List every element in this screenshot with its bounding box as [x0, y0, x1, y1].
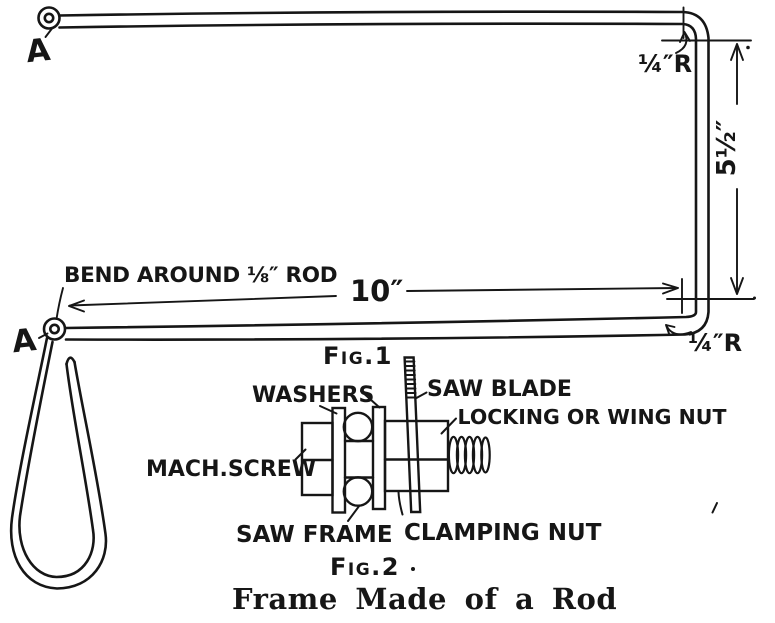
saw-blade-label: SAW BLADE	[427, 377, 572, 402]
fig2-clamp-detail: WASHERS SAW BLADE LOCKING OR WING NUT MA…	[146, 358, 726, 582]
end-label-a-top: A	[24, 32, 52, 70]
saw-frame-label: SAW FRAME	[236, 522, 393, 548]
scanned-drawing-page: A A BEND AROUND ⅛″ ROD 10″ 5½″ ¼″R ¼″R F…	[0, 0, 775, 623]
screw-shank	[345, 441, 373, 478]
fig1-rod-frame: A A BEND AROUND ⅛″ ROD 10″ 5½″ ¼″R ¼″R F…	[10, 8, 756, 589]
height-dim-label: 5½″	[712, 120, 742, 177]
top-eye-inner	[45, 14, 53, 22]
fig1-label: Fig.1	[323, 342, 393, 370]
locking-nut-label: LOCKING OR WING NUT	[458, 405, 727, 429]
frame-rod-section-top	[344, 413, 372, 441]
bottom-eye-outer	[44, 319, 65, 340]
saw-blade-leader	[416, 393, 427, 399]
clamping-nut-label: CLAMPING NUT	[404, 520, 602, 546]
bottom-eye-inner	[50, 325, 58, 333]
speck	[411, 567, 415, 571]
bend-note-leader	[57, 288, 64, 319]
end-label-a-bottom: A	[10, 322, 38, 360]
fig2-label: Fig.2	[330, 553, 400, 581]
saw-blade-teeth	[405, 362, 415, 398]
speck	[753, 297, 756, 300]
technical-drawing: A A BEND AROUND ⅛″ ROD 10″ 5½″ ¼″R ¼″R F…	[0, 0, 775, 623]
washers-label: WASHERS	[252, 383, 374, 408]
corner-radius-label-top: ¼″R	[638, 50, 692, 78]
top-eye-outer	[39, 8, 60, 29]
fig2-leaders	[296, 391, 457, 521]
bend-note-label: BEND AROUND ⅛″ ROD	[64, 263, 337, 288]
washer-right	[373, 407, 385, 509]
screw-threads	[449, 437, 490, 473]
frame-rod-section-bottom	[344, 477, 372, 505]
saw-blade-strip	[405, 358, 421, 513]
stray-mark	[713, 503, 718, 513]
mach-screw-label: MACH.SCREW	[146, 457, 316, 482]
handle-loop-inner	[19, 342, 93, 577]
handle-loop-cap	[67, 358, 75, 364]
speck	[746, 46, 750, 50]
width-dim-label: 10″	[350, 274, 403, 308]
clamping-nut-leader	[399, 492, 403, 515]
saw-frame-leader	[348, 506, 360, 522]
drawing-caption: Frame Made of a Rod	[232, 582, 617, 616]
corner-radius-label-bottom: ¼″R	[688, 329, 742, 357]
